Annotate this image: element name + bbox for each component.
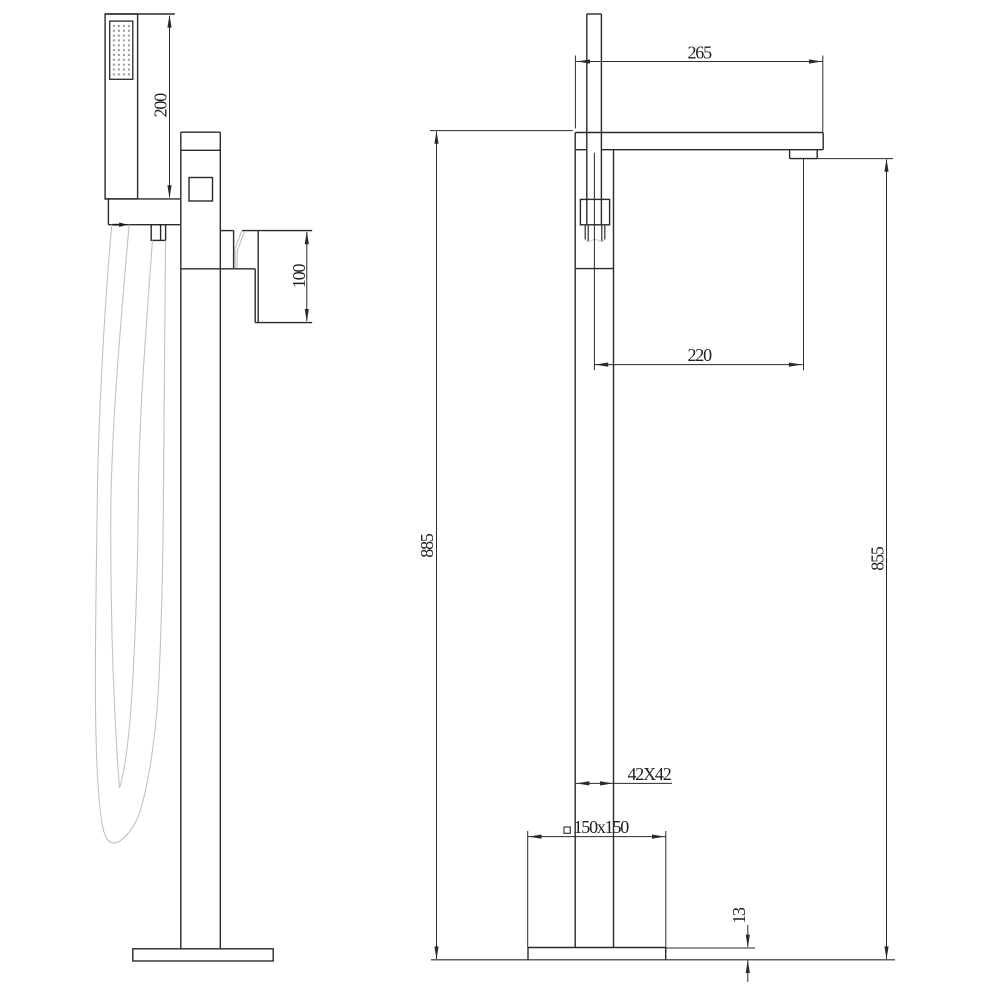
svg-text:200: 200 (150, 93, 170, 118)
svg-text:150x150: 150x150 (573, 817, 629, 837)
svg-text:265: 265 (687, 43, 712, 63)
svg-text:42X42: 42X42 (628, 764, 671, 784)
svg-text:100: 100 (289, 264, 309, 289)
svg-text:855: 855 (868, 546, 888, 571)
svg-text:885: 885 (417, 533, 437, 558)
svg-text:13: 13 (729, 907, 749, 924)
svg-text:220: 220 (687, 345, 712, 365)
